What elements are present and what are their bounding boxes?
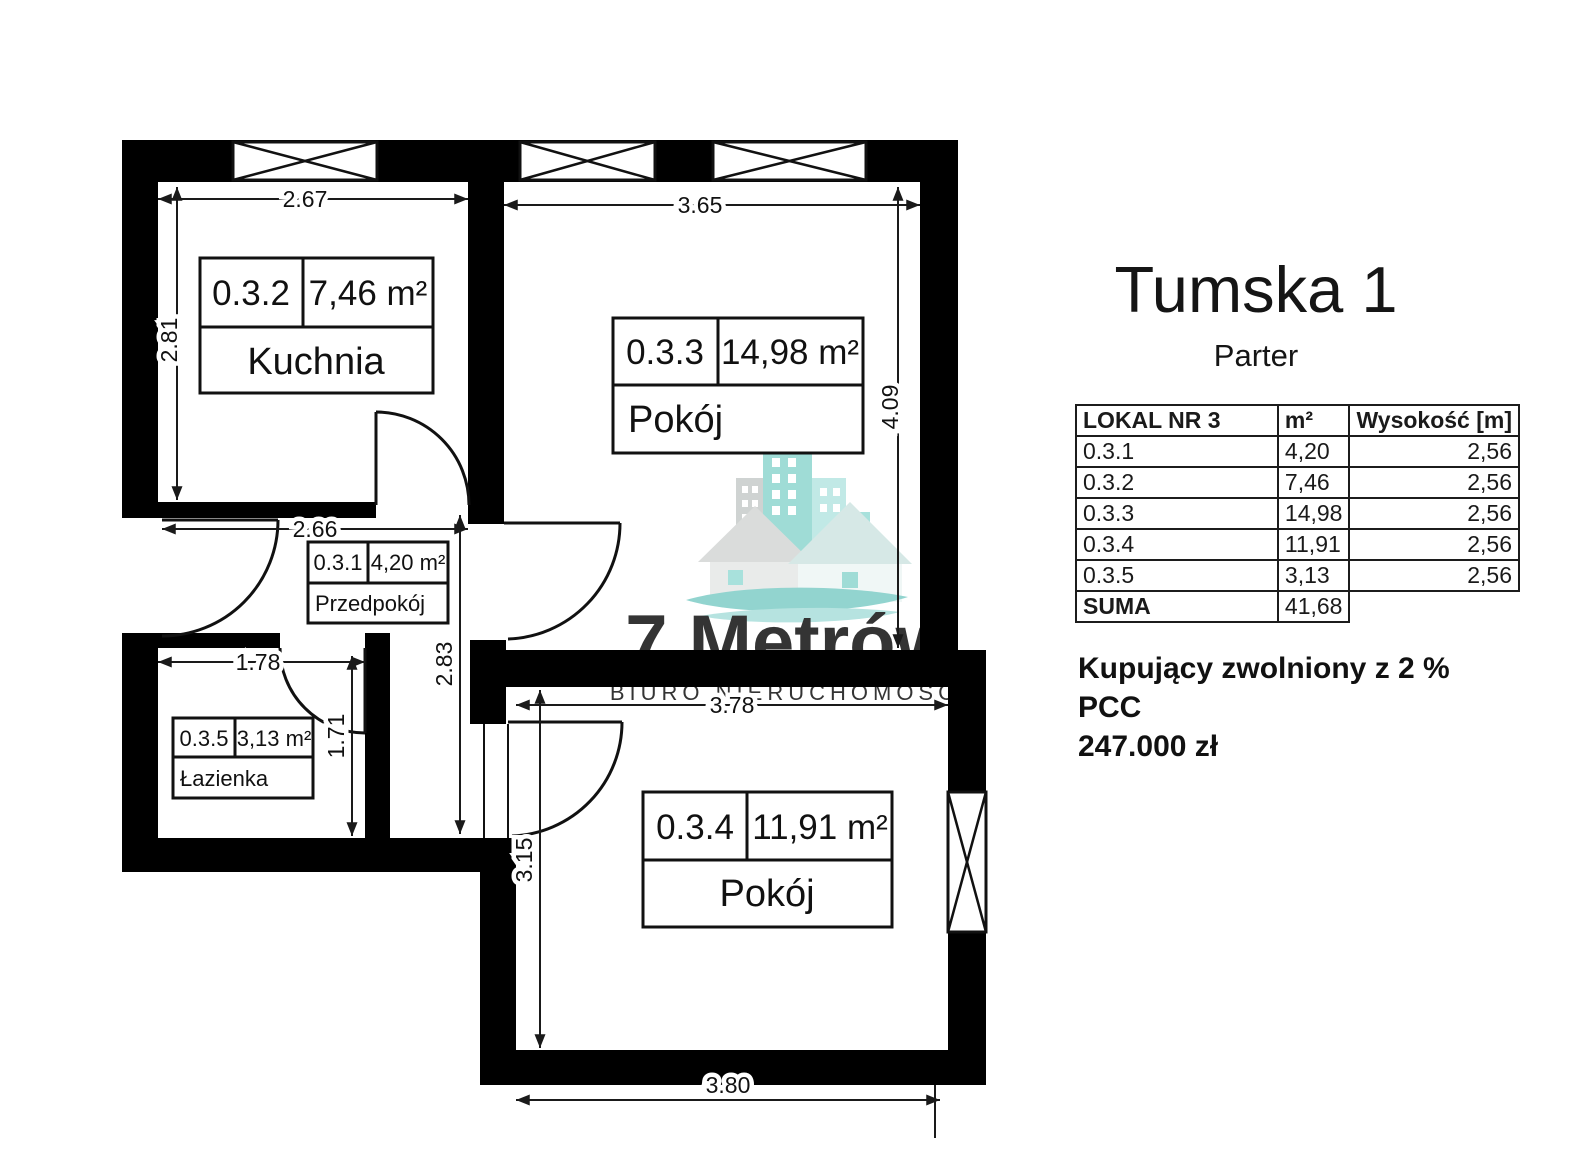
room-id-label: 0.3.1 (314, 550, 363, 575)
table-header-row: LOKAL NR 3 m² Wysokość [m] (1076, 405, 1519, 436)
info-panel: Tumska 1 Parter LOKAL NR 3 m² Wysokość [… (1050, 256, 1520, 766)
table-cell-suma-value: 41,68 (1278, 591, 1350, 622)
window-symbol (233, 142, 377, 180)
door-swing-room-034 (508, 722, 622, 836)
table-cell-height: 2,56 (1349, 436, 1519, 467)
dimension-label: 1.71 (323, 714, 349, 759)
room-id-label: 0.3.5 (180, 726, 229, 751)
dimension-label: 2.83 (431, 642, 457, 687)
dimension-label: 2.67 (283, 186, 328, 212)
dimension-label: 4.09 (877, 385, 903, 430)
dimension-label: 3.15 (511, 838, 537, 883)
note-pcc: Kupujący zwolniony z 2 % PCC (1078, 649, 1520, 727)
room-name-label: Pokój (628, 399, 723, 441)
table-cell-area: 7,46 (1278, 467, 1350, 498)
table-cell-suma-label: SUMA (1076, 591, 1278, 622)
table-cell-id: 0.3.5 (1076, 560, 1278, 591)
dimension-label: 3.65 (678, 192, 723, 218)
page-subtitle: Parter (1050, 338, 1462, 374)
table-header-lokal: LOKAL NR 3 (1076, 405, 1278, 436)
table-cell-id: 0.3.1 (1076, 436, 1278, 467)
dimension-label: 2.66 (293, 516, 338, 542)
room-name-label: Przedpokój (315, 591, 425, 616)
table-cell-id: 0.3.2 (1076, 467, 1278, 498)
room-area-label: 14,98 m² (721, 333, 859, 372)
room-area-label: 7,46 m² (309, 274, 428, 313)
table-cell-id: 0.3.3 (1076, 498, 1278, 529)
table-cell-area: 11,91 (1278, 529, 1350, 560)
table-row: 0.3.2 7,46 2,56 (1076, 467, 1519, 498)
notes: Kupujący zwolniony z 2 % PCC 247.000 zł (1078, 649, 1520, 766)
room-name-label: Pokój (719, 873, 814, 915)
table-row: 0.3.4 11,91 2,56 (1076, 529, 1519, 560)
table-row: 0.3.3 14,98 2,56 (1076, 498, 1519, 529)
room-name-label: Kuchnia (247, 341, 385, 383)
room-id-label: 0.3.4 (656, 808, 734, 847)
dimension-label: 1.78 (236, 649, 281, 675)
table-cell-area: 14,98 (1278, 498, 1350, 529)
table-cell-height: 2,56 (1349, 467, 1519, 498)
floor-plan: 7 Metrów BIURO NIERUCHOMOŚCI (0, 0, 1000, 1156)
dimension-label: 3.78 (710, 692, 755, 718)
page-title: Tumska 1 (1050, 256, 1462, 324)
table-cell-height: 2,56 (1349, 529, 1519, 560)
table-suma-row: SUMA 41,68 (1076, 591, 1519, 622)
room-name-label: Łazienka (180, 766, 269, 791)
room-area-label: 4,20 m² (371, 550, 446, 575)
table-row: 0.3.1 4,20 2,56 (1076, 436, 1519, 467)
table-cell-height: 2,56 (1349, 560, 1519, 591)
note-price: 247.000 zł (1078, 727, 1520, 766)
table-cell-empty (1349, 591, 1519, 622)
table-header-wysokosc: Wysokość [m] (1349, 405, 1519, 436)
door-swing-entrance (162, 520, 278, 636)
table-header-m2: m² (1278, 405, 1350, 436)
table-cell-height: 2,56 (1349, 498, 1519, 529)
room-area-label: 11,91 m² (752, 808, 888, 847)
table-cell-area: 3,13 (1278, 560, 1350, 591)
window-symbol (948, 792, 986, 932)
door-swing-kitchen (376, 412, 469, 505)
table-row: 0.3.5 3,13 2,56 (1076, 560, 1519, 591)
table-cell-area: 4,20 (1278, 436, 1350, 467)
doorway-jambs (484, 724, 508, 838)
window-symbol (713, 142, 866, 180)
door-swing-room-033 (504, 523, 620, 639)
table-cell-id: 0.3.4 (1076, 529, 1278, 560)
room-area-label: 3,13 m² (237, 726, 312, 751)
window-symbol (520, 142, 655, 180)
room-id-label: 0.3.2 (212, 274, 290, 313)
dimension-label: 2.81 (156, 318, 182, 363)
room-id-label: 0.3.3 (626, 333, 704, 372)
dimension-label: 3.80 (706, 1072, 751, 1098)
area-table: LOKAL NR 3 m² Wysokość [m] 0.3.1 4,20 2,… (1075, 404, 1520, 623)
